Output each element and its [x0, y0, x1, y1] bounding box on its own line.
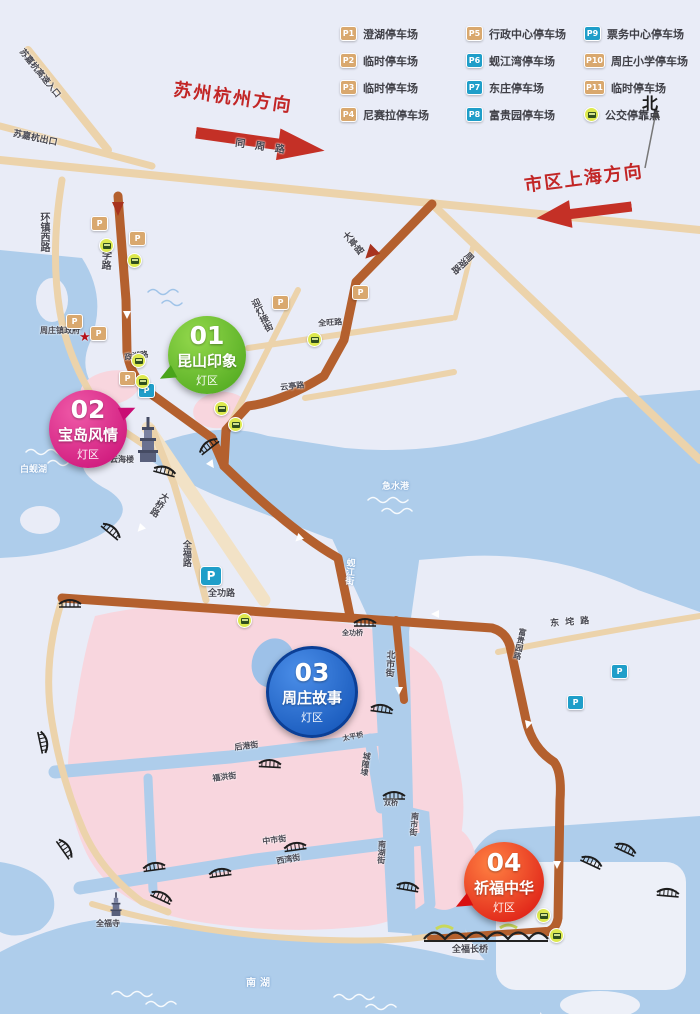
government-star-icon: ★	[79, 331, 91, 344]
legend-label: 澄湖停车场	[363, 26, 418, 42]
legend-item-P9: P9票务中心停车场	[584, 26, 700, 42]
map-parking-icon: P	[272, 295, 289, 310]
zone-number: 04	[487, 850, 522, 875]
legend-label: 尼赛拉停车场	[363, 107, 429, 123]
north-indicator: 北	[642, 90, 658, 114]
map-bus-stop-icon	[131, 353, 146, 368]
zone-badge-02: 02宝岛风情灯区	[49, 390, 127, 468]
map-label-27: 双桥	[384, 800, 398, 808]
map-label-28: 南市街	[408, 812, 419, 837]
parking-icon-P5: P5	[466, 26, 483, 41]
map-label-12: 白蚬湖	[20, 466, 47, 476]
zone-sub-label: 灯区	[196, 372, 218, 388]
legend-label: 周庄小学停车场	[611, 53, 688, 69]
zone-number: 03	[295, 660, 330, 685]
map-label-18: 蚬江街	[342, 558, 354, 586]
parking-icon-P10: P10	[584, 53, 605, 68]
map-label-32: 全福长桥	[452, 946, 488, 956]
parking-icon-P3: P3	[340, 80, 357, 95]
map-bus-stop-icon	[99, 238, 114, 253]
map-bus-stop-icon	[536, 908, 551, 923]
legend-item-P5: P5行政中心停车场	[466, 26, 584, 42]
parking-icon-P2: P2	[340, 53, 357, 68]
map-parking-icon: P	[91, 216, 108, 231]
map-label-9: 全旺路	[318, 318, 343, 328]
map-label-20: 北市街	[383, 650, 394, 677]
legend-label: 票务中心停车场	[607, 26, 684, 42]
map-bus-stop-icon	[127, 253, 142, 268]
legend-item-P3: P3临时停车场	[340, 80, 466, 96]
parking-icon-P4: P4	[340, 107, 357, 122]
bus-stop-icon	[584, 107, 599, 122]
zone-badge-01: 01昆山印象灯区	[168, 316, 246, 394]
legend-item-P1: P1澄湖停车场	[340, 26, 466, 42]
map-label-16: 全福路	[180, 540, 190, 567]
zone-name: 宝岛风情	[58, 424, 118, 445]
legend-label: 蚬江湾停车场	[489, 53, 555, 69]
legend-label: 临时停车场	[363, 80, 418, 96]
legend-item-P10: P10周庄小学停车场	[584, 53, 700, 69]
parking-icon-P7: P7	[466, 80, 483, 95]
legend-item-P2: P2临时停车场	[340, 53, 466, 69]
legend-label: 富贵园停车场	[489, 107, 555, 123]
zone-sub-label: 灯区	[493, 899, 515, 915]
map-parking-icon: P	[90, 326, 107, 341]
map-label-19: 全功桥	[342, 630, 363, 638]
map-label-25: 城隍埭	[359, 751, 371, 776]
legend-label: 行政中心停车场	[489, 26, 566, 42]
yunhai-tower-icon	[138, 417, 158, 462]
zone-badge-03: 03周庄故事灯区	[266, 646, 358, 738]
map-parking-icon: P	[352, 285, 369, 300]
map-bus-stop-icon	[237, 613, 252, 628]
zone-sub-label: 灯区	[301, 709, 323, 725]
map-parking-icon: P	[611, 664, 628, 679]
map-base-art	[0, 0, 700, 1014]
map-label-29: 南湖街	[376, 840, 386, 864]
parking-icon-P8: P8	[466, 107, 483, 122]
map-label-17: 全功路	[208, 590, 235, 600]
map-bus-stop-icon	[214, 401, 229, 416]
zone-badge-04: 04祈福中华灯区	[464, 842, 544, 922]
map-label-34: 南湖	[246, 978, 274, 989]
zone-name: 周庄故事	[282, 687, 342, 708]
map-parking-icon: P	[567, 695, 584, 710]
parking-icon-P1: P1	[340, 26, 357, 41]
map-parking-icon-large: P	[200, 566, 222, 586]
zone-sub-label: 灯区	[77, 446, 99, 462]
north-label: 北	[642, 94, 658, 113]
map-bus-stop-icon	[228, 417, 243, 432]
map-parking-icon: P	[66, 314, 83, 329]
zhouzhuang-lantern-festival-map: P1澄湖停车场P2临时停车场P3临时停车场P4尼赛拉停车场P5行政中心停车场P6…	[0, 0, 700, 1014]
parking-icon-P6: P6	[466, 53, 483, 68]
map-label-33: 全福寺	[96, 920, 120, 929]
zone-name: 昆山印象	[177, 350, 237, 371]
map-label-3: 环镇西路	[38, 212, 49, 252]
quanfu-temple-pagoda-icon	[111, 892, 122, 916]
map-bus-stop-icon	[549, 928, 564, 943]
legend-label: 临时停车场	[363, 53, 418, 69]
map-label-14: 急水港	[382, 483, 409, 493]
legend-item-P8: P8富贵园停车场	[466, 107, 584, 123]
legend-item-P7: P7东庄停车场	[466, 80, 584, 96]
map-bus-stop-icon	[307, 332, 322, 347]
zone-number: 01	[190, 323, 225, 348]
zone-name: 祈福中华	[474, 877, 534, 898]
zone-number: 02	[71, 397, 106, 422]
legend-item-P6: P6蚬江湾停车场	[466, 53, 584, 69]
map-parking-icon: P	[129, 231, 146, 246]
legend-label: 东庄停车场	[489, 80, 544, 96]
legend-item-P4: P4尼赛拉停车场	[340, 107, 466, 123]
map-parking-icon: P	[119, 371, 136, 386]
map-bus-stop-icon	[135, 374, 150, 389]
parking-icon-P11: P11	[584, 80, 605, 95]
parking-icon-P9: P9	[584, 26, 601, 41]
